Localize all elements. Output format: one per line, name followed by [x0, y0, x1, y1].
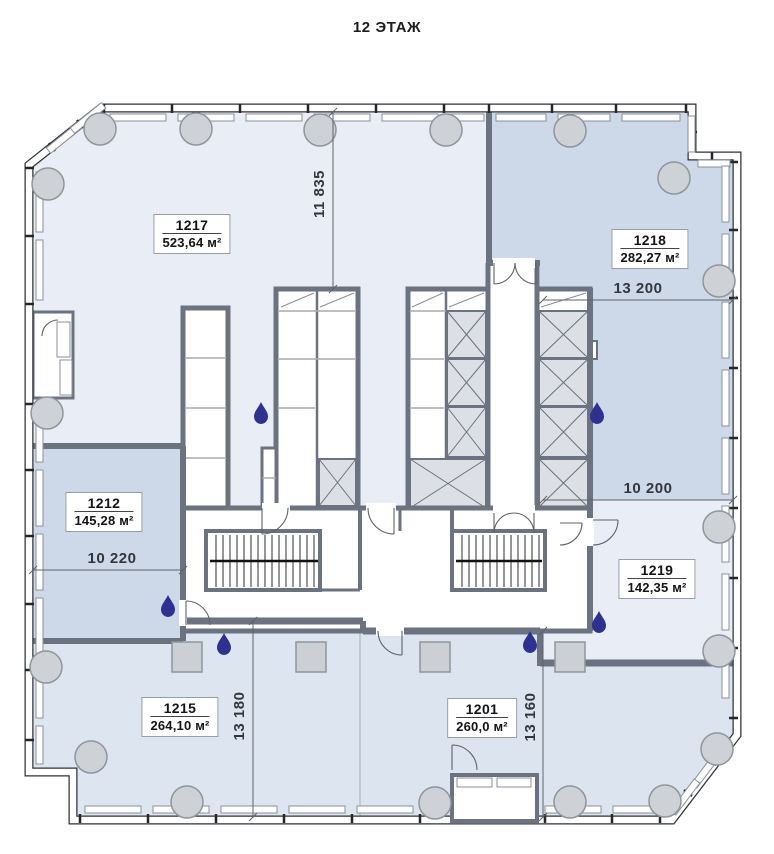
unit-zones — [29, 108, 737, 820]
unit-area: 523,64 м² — [162, 235, 221, 250]
column-square — [420, 642, 450, 672]
floor-plan-drawing: 11 835 13 200 10 200 10 220 13 180 13 16… — [0, 0, 774, 854]
column — [430, 114, 462, 146]
unit-label-1201: 1201 260,0 м² — [447, 698, 517, 738]
unit-area: 282,27 м² — [620, 250, 679, 265]
unit-number: 1219 — [641, 562, 674, 578]
dimension-label: 13 160 — [522, 693, 539, 742]
column — [32, 168, 64, 200]
dimension-label: 10 220 — [88, 550, 137, 567]
elevator-shaft — [539, 359, 588, 406]
shaft-structure-a — [183, 308, 228, 508]
unit-label-1212: 1212 145,28 м² — [65, 492, 142, 532]
corridor — [488, 263, 537, 515]
label-divider — [150, 716, 209, 717]
column — [554, 115, 586, 147]
dimension-label: 10 200 — [624, 480, 673, 497]
column — [180, 113, 212, 145]
unit-label-1215: 1215 264,10 м² — [141, 697, 218, 737]
column — [31, 397, 63, 429]
column — [701, 733, 733, 765]
column-square — [555, 642, 585, 672]
label-divider — [162, 233, 221, 234]
unit-number: 1215 — [164, 700, 197, 716]
stairs-left — [206, 531, 320, 590]
zone-1212 — [29, 446, 183, 641]
floor-plan-page: 12 ЭТАЖ — [0, 0, 774, 854]
unit-number: 1218 — [634, 232, 667, 248]
stairs-right — [452, 531, 545, 590]
unit-label-1217: 1217 523,64 м² — [153, 214, 230, 254]
unit-area: 264,10 м² — [150, 718, 209, 733]
elevator-shaft — [539, 311, 588, 358]
unit-area: 142,35 м² — [627, 580, 686, 595]
elevator-shaft — [410, 459, 486, 508]
label-divider — [620, 248, 679, 249]
elevator-shaft — [319, 459, 356, 506]
elevator-shaft — [447, 407, 486, 457]
elevator-shaft — [447, 311, 486, 358]
unit-area: 145,28 м² — [74, 513, 133, 528]
unit-area: 260,0 м² — [456, 719, 508, 734]
elevator-shaft — [539, 407, 588, 457]
dimension-label: 11 835 — [311, 170, 328, 218]
column — [75, 741, 107, 773]
column — [703, 265, 735, 297]
label-divider — [74, 511, 133, 512]
column — [84, 113, 116, 145]
label-divider — [456, 717, 508, 718]
column-square — [172, 642, 202, 672]
column — [649, 785, 681, 817]
unit-number: 1212 — [88, 495, 121, 511]
label-divider — [627, 578, 686, 579]
column — [658, 162, 690, 194]
unit-label-1219: 1219 142,35 м² — [618, 559, 695, 599]
unit-label-1218: 1218 282,27 м² — [611, 229, 688, 269]
column — [304, 114, 336, 146]
column — [419, 787, 451, 819]
unit-number: 1201 — [466, 701, 499, 717]
unit-number: 1217 — [176, 217, 209, 233]
column-square — [296, 642, 326, 672]
column — [554, 786, 586, 818]
column — [30, 651, 62, 683]
dimension-label: 13 200 — [614, 280, 663, 297]
left-balcony — [33, 312, 73, 398]
dimension-label: 13 180 — [231, 692, 248, 741]
column — [171, 786, 203, 818]
elevator-shaft — [447, 359, 486, 406]
column — [703, 635, 735, 667]
column — [703, 511, 735, 543]
